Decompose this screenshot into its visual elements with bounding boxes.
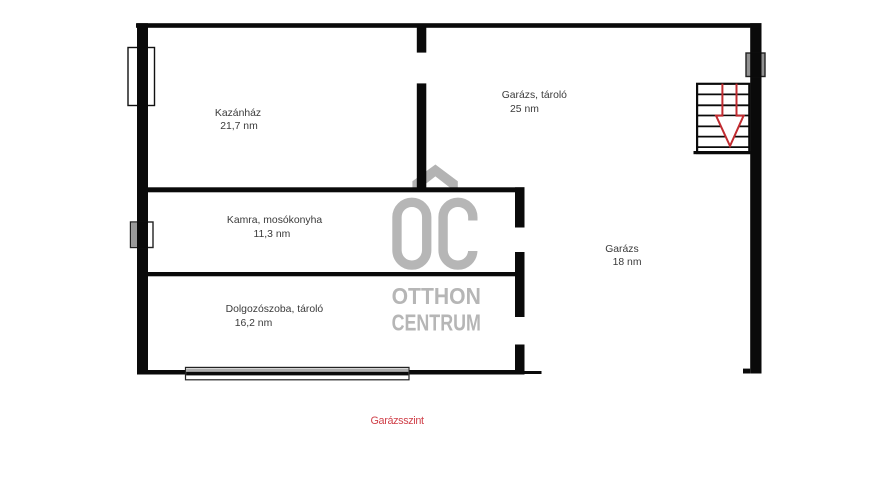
svg-text:OTTHON: OTTHON <box>392 283 481 309</box>
svg-text:CENTRUM: CENTRUM <box>392 309 481 335</box>
